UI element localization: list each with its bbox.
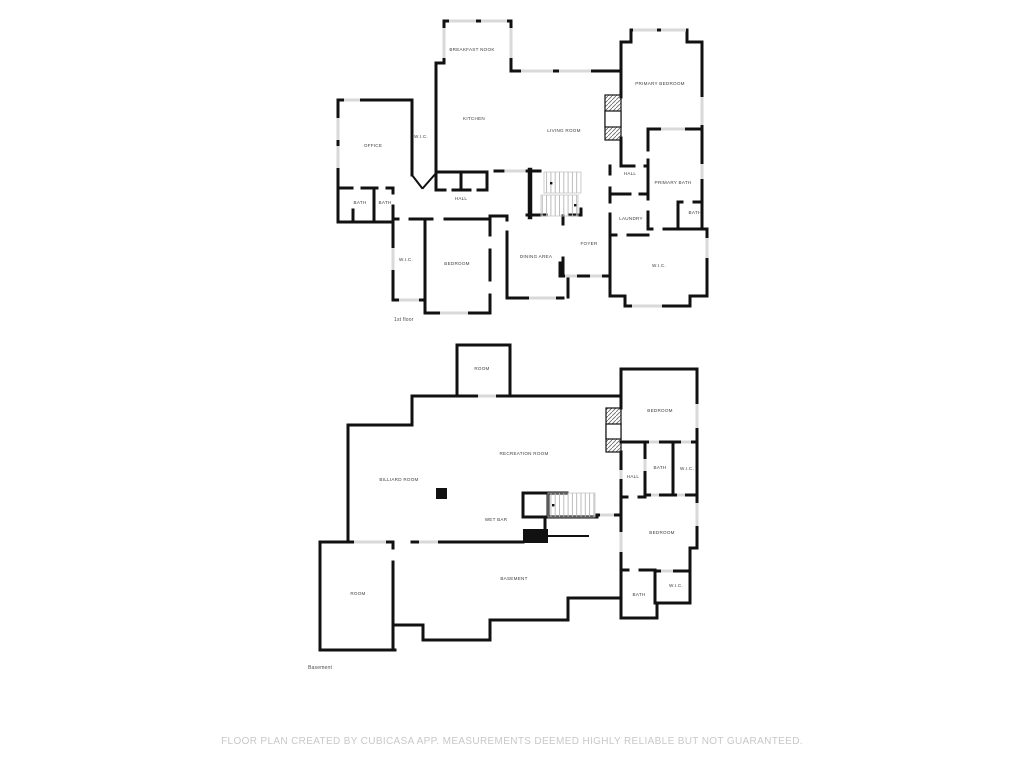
basement-floor-plan: ROOM RECREATION ROOM BILLIARD ROOM BEDRO… — [308, 345, 697, 671]
room-label-kitchen: KITCHEN — [463, 116, 485, 121]
room-label-bedroom: BEDROOM — [444, 261, 470, 266]
room-label-bedroom-upper: BEDROOM — [647, 408, 673, 413]
room-label-bath-2: BATH — [379, 200, 392, 205]
room-label-laundry: LAUNDRY — [619, 216, 643, 221]
stairs-icon — [527, 170, 581, 217]
first-floor-door-leaves — [412, 172, 437, 188]
room-label-bedroom-lower: BEDROOM — [649, 530, 675, 535]
room-label-primary-bath: PRIMARY BATH — [655, 180, 692, 185]
room-label-dining-area: DINING AREA — [520, 254, 553, 259]
room-label-foyer: FOYER — [580, 241, 598, 246]
room-label-hall-center: HALL — [455, 196, 468, 201]
room-label-recreation-room: RECREATION ROOM — [499, 451, 548, 456]
room-label-room-lower: ROOM — [350, 591, 365, 596]
room-label-bath-1: BATH — [354, 200, 367, 205]
footer-disclaimer: FLOOR PLAN CREATED BY CUBICASA APP. MEAS… — [0, 736, 1024, 747]
room-label-wic-left: W.I.C. — [399, 257, 413, 262]
first-floor-windows — [338, 21, 707, 313]
floor-label-basement: Basement — [308, 665, 333, 671]
room-label-wic-right: W.I.C. — [652, 263, 666, 268]
room-label-wic-lower: W.I.C. — [669, 583, 683, 588]
room-label-office: OFFICE — [364, 143, 382, 148]
room-label-bath-lower: BATH — [633, 592, 646, 597]
room-label-primary-bedroom: PRIMARY BEDROOM — [635, 81, 685, 86]
billiard-table-icon — [436, 488, 447, 499]
room-label-wic-office: W.I.C. — [414, 134, 428, 139]
first-floor-plan: BREAKFAST NOOK KITCHEN LIVING ROOM PRIMA… — [338, 21, 707, 323]
room-label-bath-upper: BATH — [654, 465, 667, 470]
room-label-wic-upper: W.I.C. — [680, 466, 694, 471]
room-label-breakfast-nook: BREAKFAST NOOK — [449, 47, 495, 52]
stairs-icon — [548, 493, 595, 517]
floor-label-1st-floor: 1st floor — [394, 317, 414, 323]
basement-walls — [320, 345, 697, 650]
room-label-room-top: ROOM — [474, 366, 489, 371]
room-label-hall-right: HALL — [624, 171, 637, 176]
room-label-bath-right: BATH — [689, 210, 702, 215]
room-label-billiard-room: BILLIARD ROOM — [379, 477, 418, 482]
room-label-living-room: LIVING ROOM — [547, 128, 580, 133]
floor-plan-canvas: BREAKFAST NOOK KITCHEN LIVING ROOM PRIMA… — [0, 0, 1024, 768]
fireplace-icon — [606, 408, 621, 452]
room-label-wet-bar: WET BAR — [485, 517, 508, 522]
fireplace-icon — [605, 95, 621, 140]
room-label-basement-area: BASEMENT — [500, 576, 527, 581]
bar-counter-icon — [523, 529, 548, 543]
room-label-hall: HALL — [627, 474, 640, 479]
